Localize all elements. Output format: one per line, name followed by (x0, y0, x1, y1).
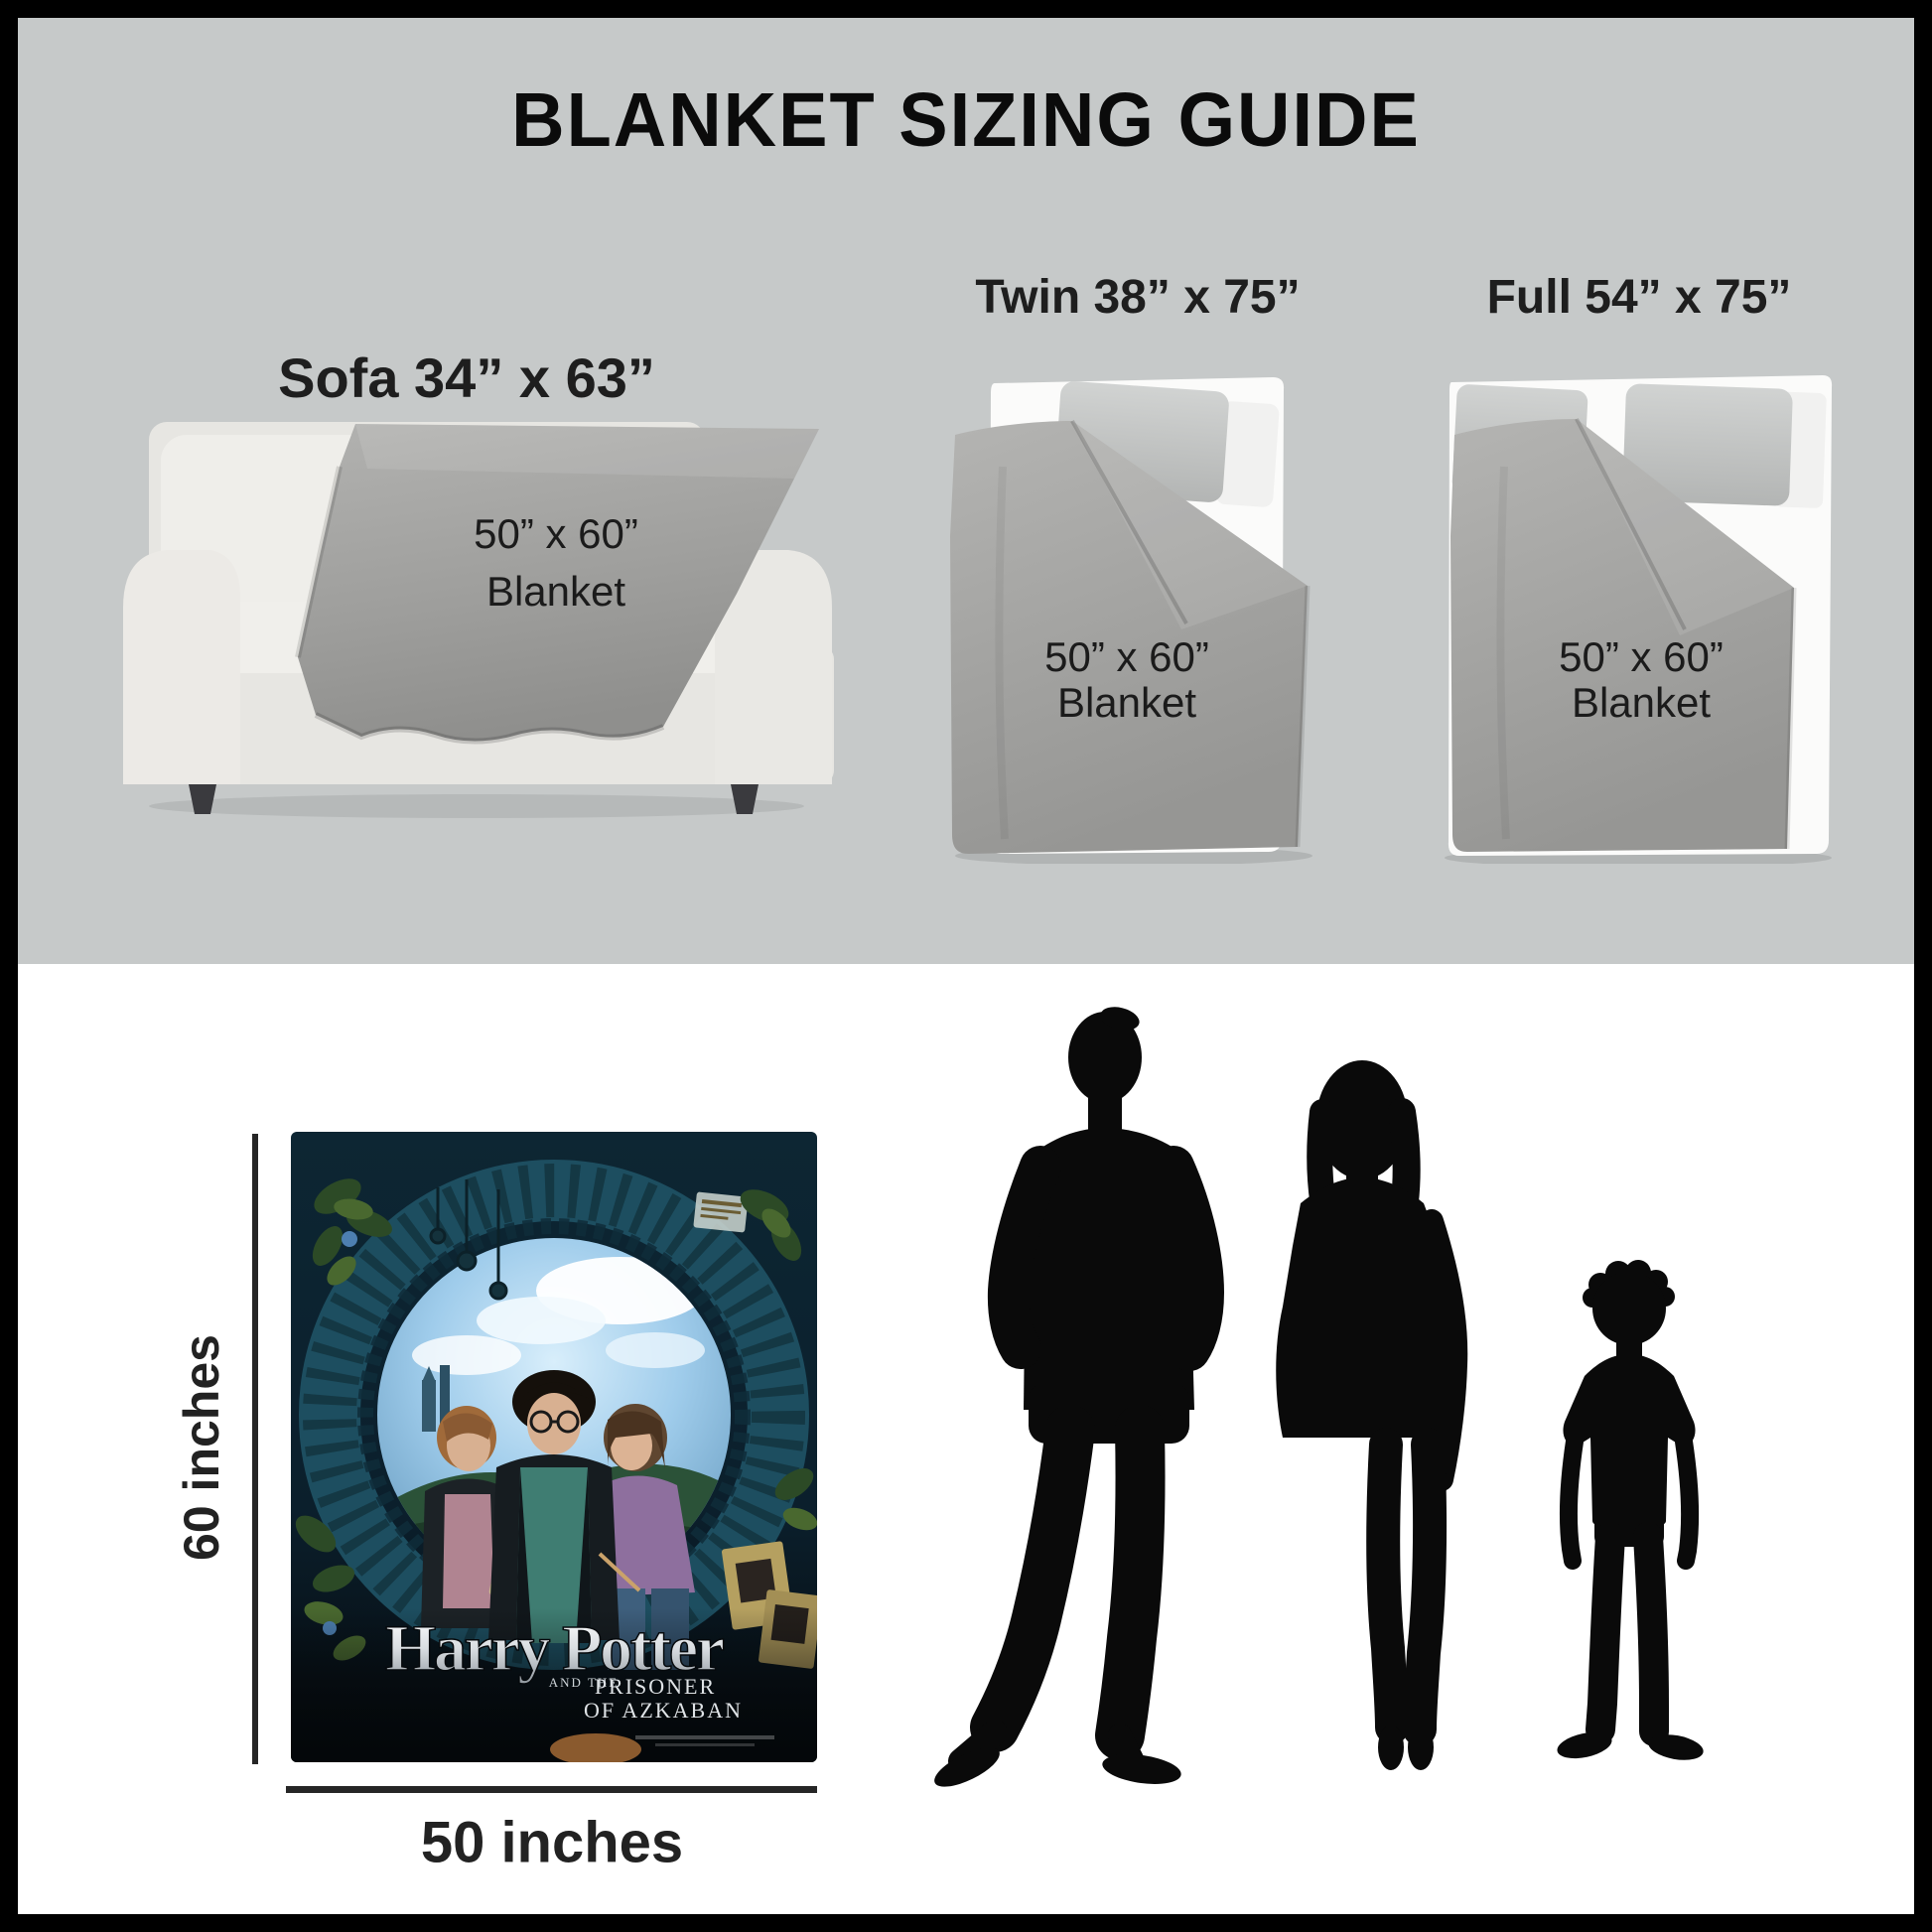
sofa-blanket-size-text: 50” x 60” (474, 510, 638, 557)
twin-blanket-size-text: 50” x 60” (1044, 633, 1209, 680)
full-size-label: Full 54” x 75” (1487, 270, 1792, 325)
poster-subtitle-line2-text: OF AZKABAN (584, 1698, 743, 1723)
sofa-illustration: 50” x 60” Blanket (109, 412, 844, 819)
page-title: BLANKET SIZING GUIDE (18, 75, 1914, 163)
full-blanket-size-text: 50” x 60” (1559, 633, 1724, 680)
harry-potter-blanket-image: Harry Potter AND THE PRISONER OF AZKABAN (291, 1132, 817, 1762)
height-dimension-line (252, 1134, 258, 1764)
blanket-sizing-guide: BLANKET SIZING GUIDE Sofa 34” x 63” Twin… (0, 0, 1932, 1932)
full-blanket-word-text: Blanket (1572, 679, 1711, 726)
sofa-blanket-word-text: Blanket (486, 568, 625, 615)
scale-silhouettes (933, 1003, 1718, 1797)
twin-blanket-word-text: Blanket (1057, 679, 1196, 726)
width-dimension-label: 50 inches (421, 1810, 683, 1876)
poster-credits-line (635, 1735, 774, 1739)
height-dimension-label: 60 inches (173, 1334, 230, 1561)
man-silhouette (933, 1003, 1203, 1794)
poster-subtitle-line1-text: PRISONER (595, 1674, 716, 1699)
twin-bed-illustration: 50” x 60” Blanket (933, 367, 1330, 864)
sofa-shadow (149, 794, 804, 818)
width-dimension-line (286, 1786, 817, 1793)
woman-silhouette (1276, 1060, 1455, 1770)
poster-credits-line2 (655, 1743, 755, 1746)
twin-size-label: Twin 38” x 75” (975, 270, 1300, 325)
canvas: BLANKET SIZING GUIDE Sofa 34” x 63” Twin… (18, 18, 1914, 1914)
boy-silhouette (1555, 1260, 1706, 1764)
full-bed-illustration: 50” x 60” Blanket (1430, 367, 1847, 864)
sofa-size-label: Sofa 34” x 63” (278, 345, 655, 410)
